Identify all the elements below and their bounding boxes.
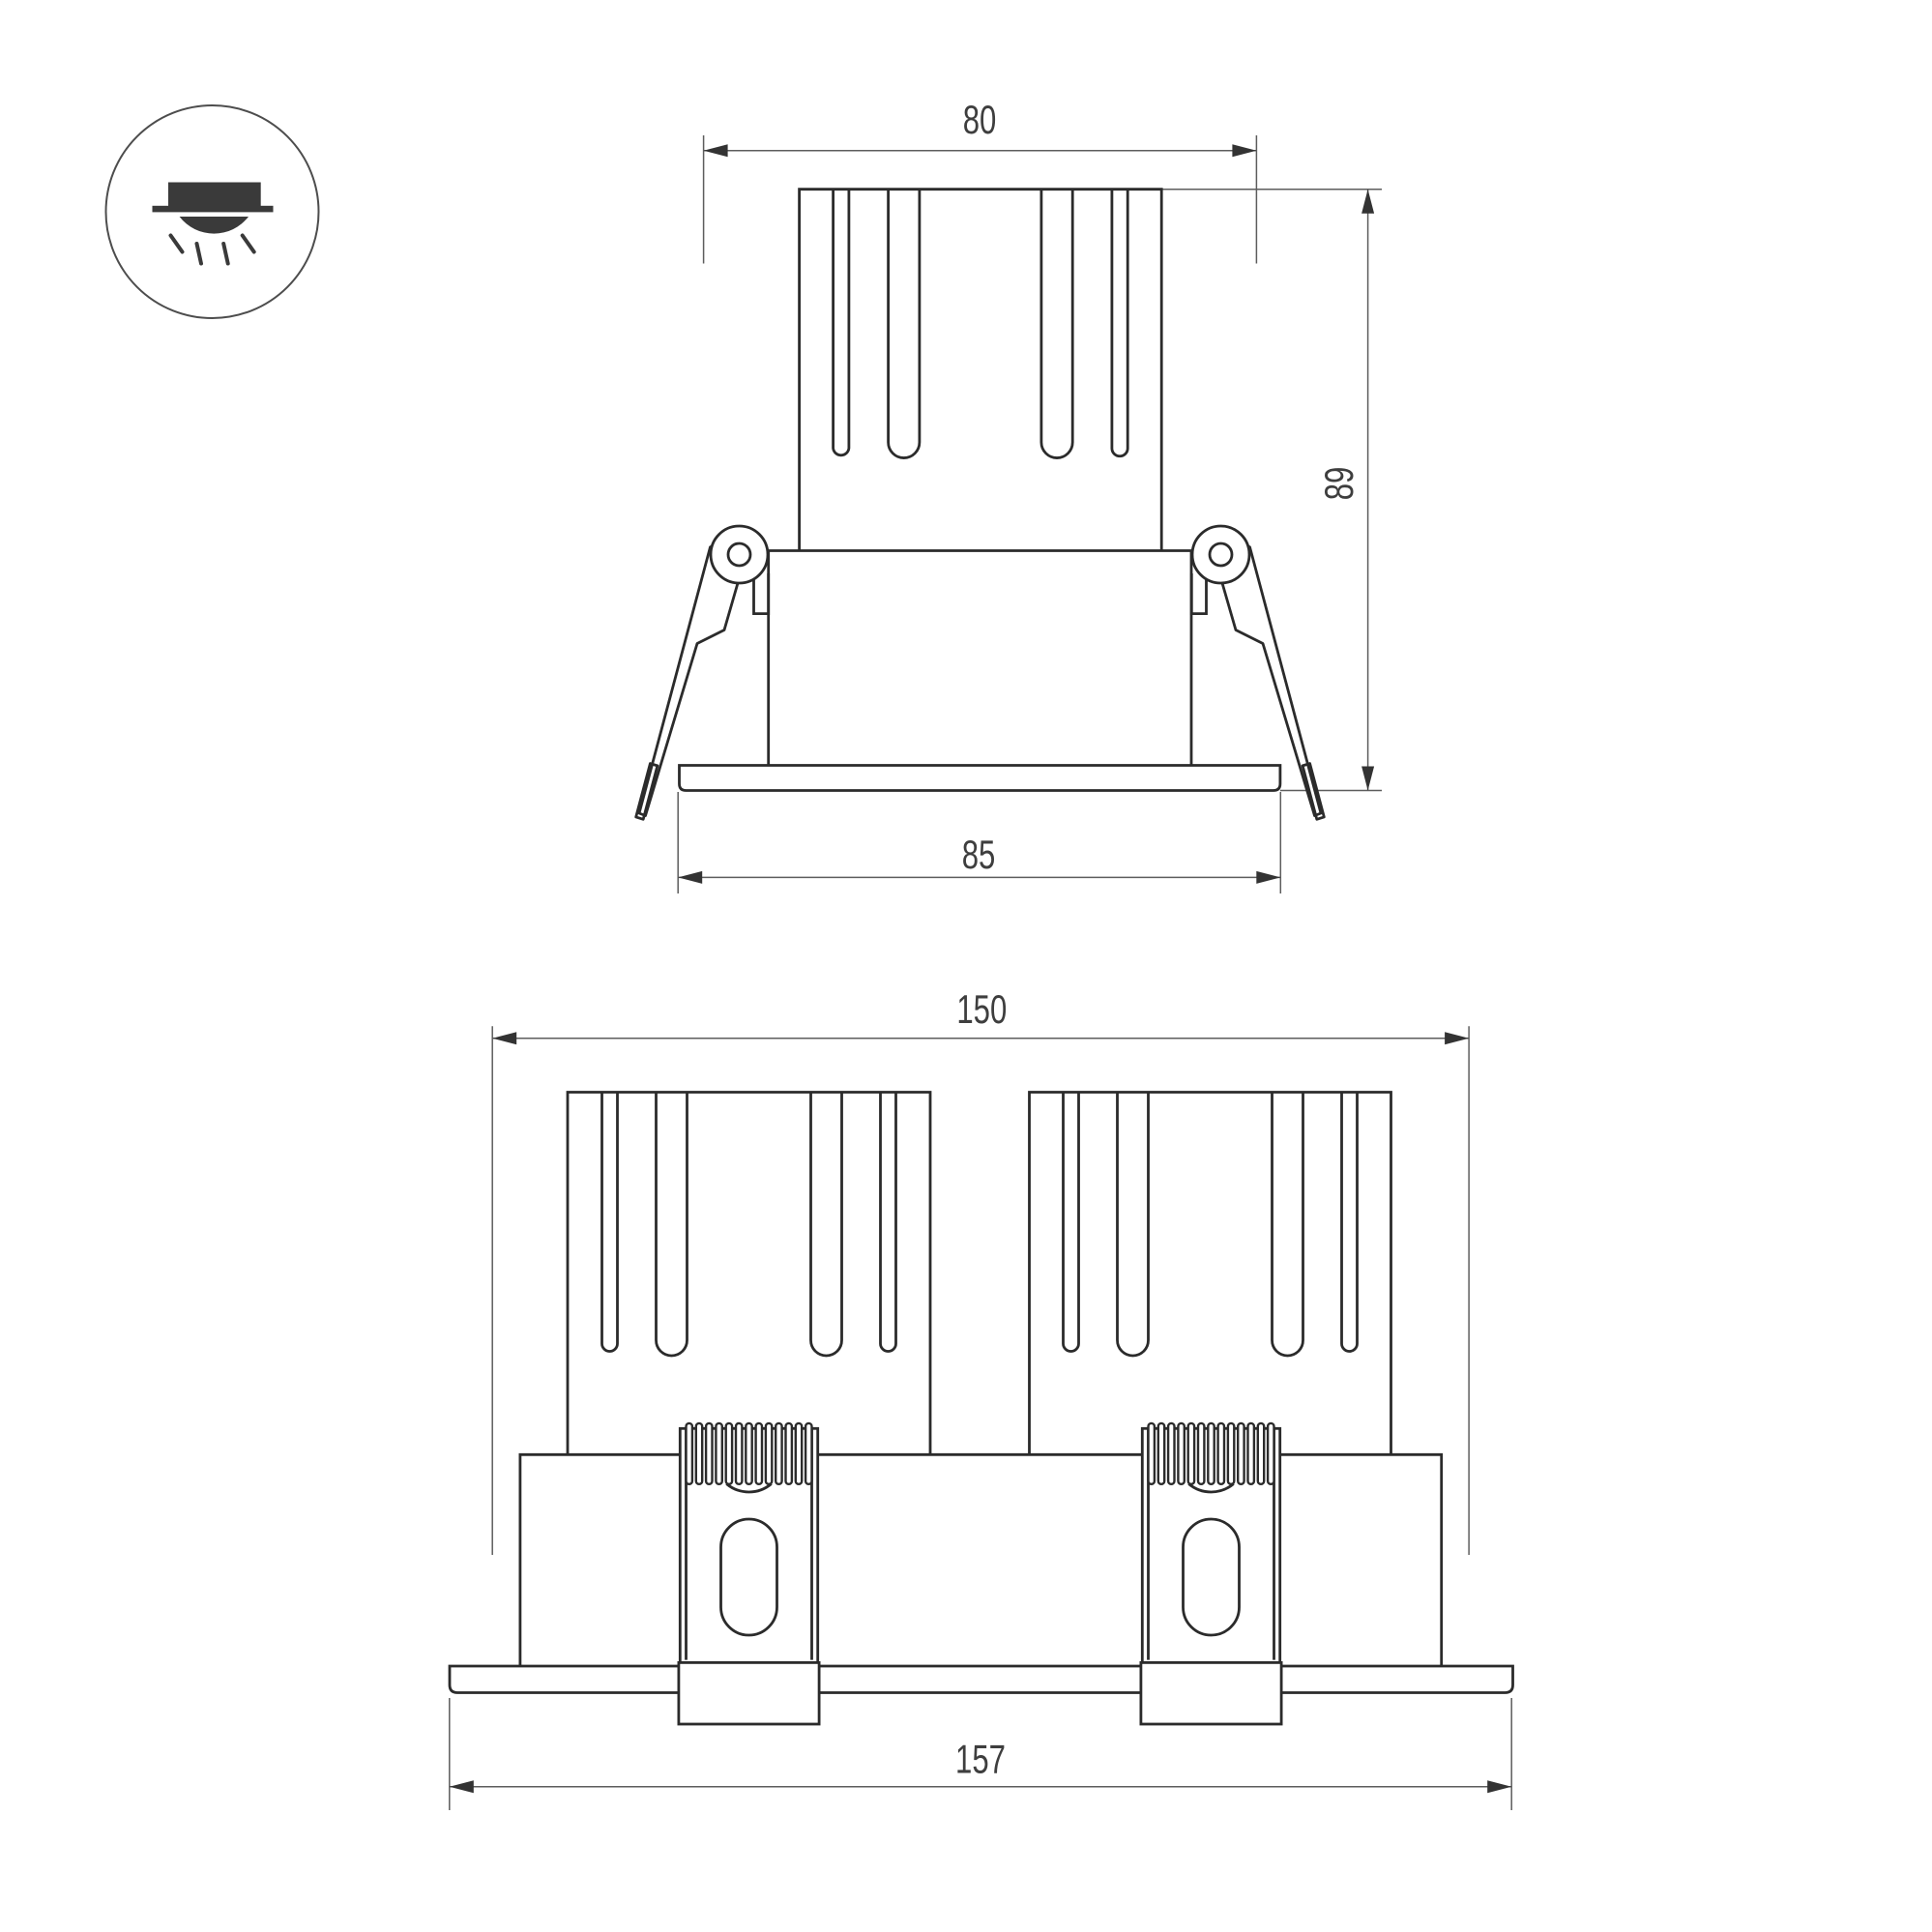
svg-text:150: 150 — [956, 986, 1007, 1031]
svg-text:85: 85 — [962, 833, 996, 877]
svg-text:89: 89 — [1317, 467, 1361, 501]
svg-text:80: 80 — [963, 98, 997, 142]
svg-text:157: 157 — [955, 1737, 1006, 1781]
